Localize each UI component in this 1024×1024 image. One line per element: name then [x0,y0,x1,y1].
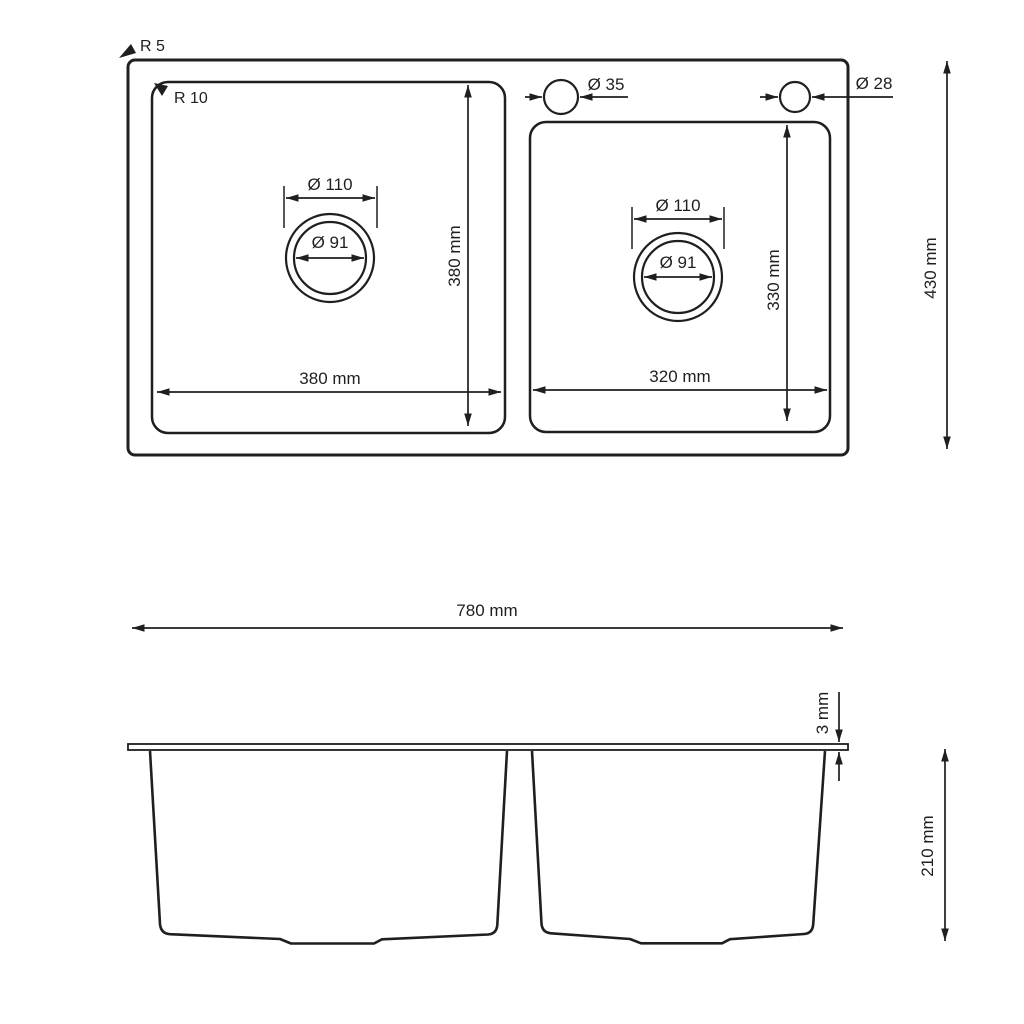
right-drain-diameter-label: Ø 91 [660,253,697,272]
left-bowl-profile [150,751,507,944]
left-bowl-depth-label: 380 mm [445,225,464,286]
right-bowl-width-label: 320 mm [649,367,710,386]
top-view: R 5 R 10 Ø 35 Ø 28 Ø 110 Ø 91 Ø 110 Ø 91 [119,38,947,455]
outer-corner-radius-label: R 5 [140,38,165,55]
right-bowl-depth-label: 330 mm [764,249,783,310]
left-drain-flange-diameter-label: Ø 110 [307,175,352,194]
left-bowl-width-label: 380 mm [299,369,360,388]
sink-technical-drawing-page: R 5 R 10 Ø 35 Ø 28 Ø 110 Ø 91 Ø 110 Ø 91 [0,0,1024,1024]
bowl-corner-radius-label: R 10 [174,90,208,107]
r5-leader-arrow-icon [119,44,136,58]
sink-outer-outline [128,60,848,455]
accessory-hole-diameter-label: Ø 28 [856,74,893,93]
right-bowl-profile [532,751,825,943]
faucet-hole-diameter-label: Ø 35 [588,75,625,94]
r10-leader-arrow-icon [154,83,168,96]
overall-depth-label: 430 mm [921,237,940,298]
right-drain-flange-diameter-label: Ø 110 [655,196,700,215]
rim-profile [128,744,848,750]
faucet-hole-circle [544,80,578,114]
overall-width-label: 780 mm [456,601,517,620]
accessory-hole-circle [780,82,810,112]
bowl-height-label: 210 mm [918,815,937,876]
rim-thickness-label: 3 mm [813,692,832,735]
left-drain-diameter-label: Ø 91 [312,233,349,252]
sink-technical-drawing: R 5 R 10 Ø 35 Ø 28 Ø 110 Ø 91 Ø 110 Ø 91 [0,0,1024,1024]
side-view: 780 mm 3 mm 210 mm [128,601,945,944]
